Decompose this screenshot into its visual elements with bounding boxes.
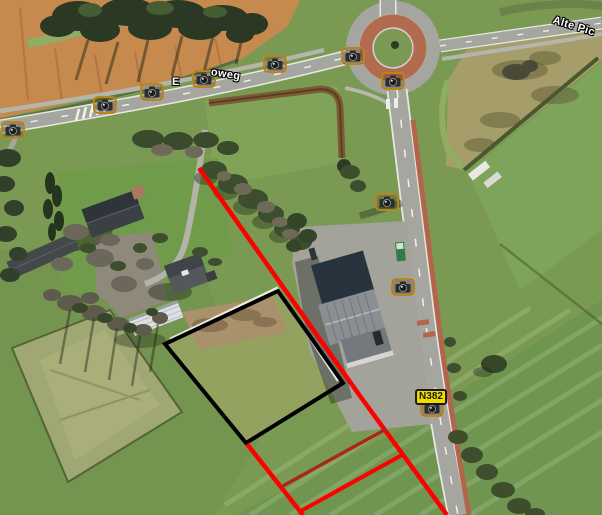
photo-camera-marker[interactable]	[375, 193, 399, 211]
camera-icon	[381, 72, 405, 90]
road-badge-label: N382	[419, 391, 443, 402]
photo-camera-marker[interactable]	[93, 96, 117, 114]
camera-icon	[192, 70, 216, 88]
camera-icon	[140, 83, 164, 101]
photo-camera-marker[interactable]	[263, 55, 287, 73]
photo-camera-marker[interactable]	[391, 278, 415, 296]
photo-camera-marker[interactable]	[140, 83, 164, 101]
camera-icon	[93, 96, 117, 114]
photo-camera-marker[interactable]	[341, 47, 365, 65]
aerial-photo	[0, 0, 602, 515]
road-number-badge: N382	[415, 389, 447, 405]
camera-icon	[375, 193, 399, 211]
map-canvas[interactable]: EowegAlte Pic N382	[0, 0, 602, 515]
camera-icon	[391, 278, 415, 296]
camera-icon	[263, 55, 287, 73]
photo-camera-marker[interactable]	[1, 121, 25, 139]
camera-icon	[341, 47, 365, 65]
photo-camera-marker[interactable]	[192, 70, 216, 88]
camera-icon	[1, 121, 25, 139]
photo-camera-marker[interactable]	[381, 72, 405, 90]
